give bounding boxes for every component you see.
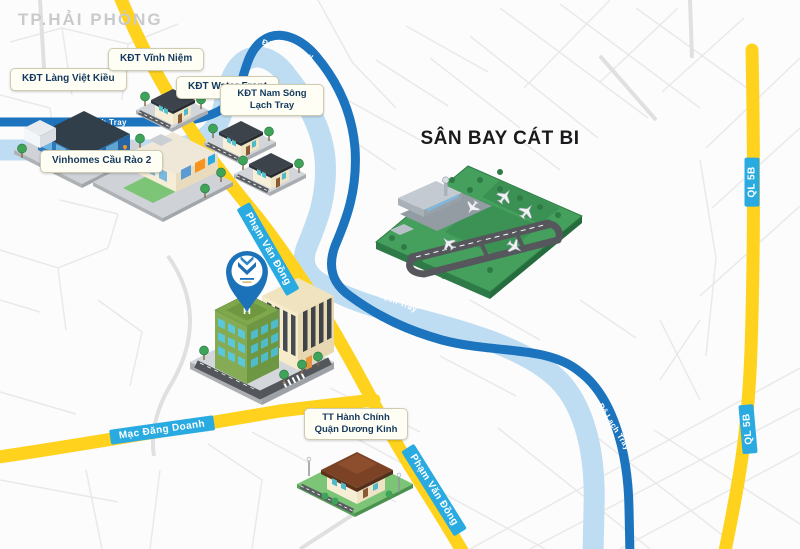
label-nam-song-line1: KĐT Nam Sông (226, 88, 318, 100)
building-project: H (190, 278, 334, 405)
label-vinh-niem: KĐT Vĩnh Niệm (108, 48, 204, 71)
map-canvas: Đê Lạch Tray Đê Lạch Tray Đê Lạch Tray Đ… (0, 0, 800, 549)
road-label-ql-5b-upper: QL 5B (745, 157, 760, 206)
label-nam-song-line2: Lạch Tray (226, 100, 318, 112)
label-tt-hanh-chinh: TT Hành Chính Quận Dương Kinh (304, 408, 408, 440)
label-nam-song-lach-tray: KĐT Nam Sông Lạch Tray (220, 84, 324, 116)
label-lang-viet-kieu: KĐT Làng Việt Kiều (10, 68, 127, 91)
label-vinhomes-cau-rao-2: Vinhomes Cầu Rào 2 (40, 150, 163, 173)
control-tower (444, 182, 448, 196)
road-label-de-lach-tray: Đê Lạch Tray (596, 402, 632, 452)
airport-illustration (376, 166, 582, 299)
airport-title: SÂN BAY CÁT BI (398, 128, 602, 150)
city-label: TP.HẢI PHÒNG (18, 10, 163, 30)
building-nam-song-lach-tray (234, 153, 306, 196)
road-ql-5b (724, 50, 753, 549)
building-tt-hanh-chinh (297, 452, 413, 517)
label-tt-hanh-chinh-line2: Quận Dương Kinh (310, 424, 402, 436)
label-tt-hanh-chinh-line1: TT Hành Chính (310, 412, 402, 424)
